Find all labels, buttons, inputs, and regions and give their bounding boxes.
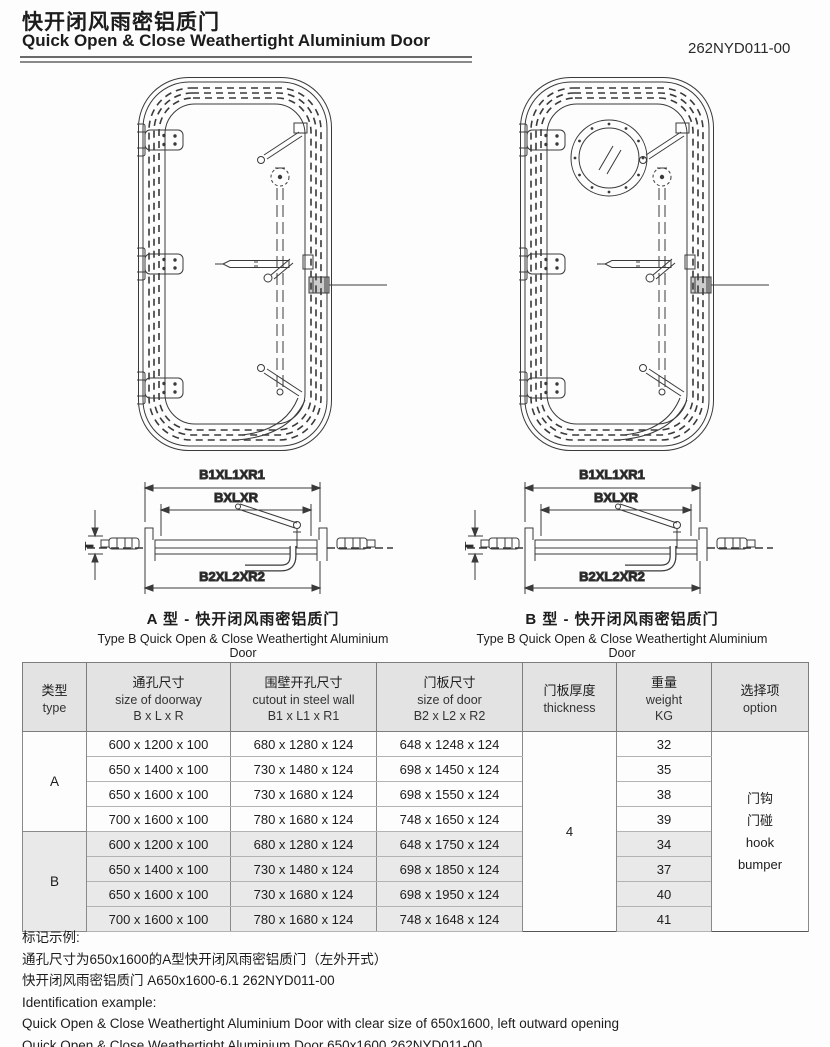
weight-value: 38 [617,782,712,807]
door-size: 748 x 1648 x 124 [377,907,523,932]
caption-type-b-en: Type B Quick Open & Close Weathertight A… [472,632,772,660]
weight-value: 35 [617,757,712,782]
page-title-en: Quick Open & Close Weathertight Aluminiu… [22,31,430,51]
weight-value: 41 [617,907,712,932]
cutout-size: 730 x 1680 x 124 [231,882,377,907]
option-item: 门碰 [714,810,806,832]
caption-type-a-zh: A 型 - 快开闭风雨密铝质门 [93,608,393,629]
cutout-size: 780 x 1680 x 124 [231,907,377,932]
footer-line: Quick Open & Close Weathertight Aluminiu… [22,1038,812,1047]
table-row: 700 x 1600 x 100 780 x 1680 x 124 748 x … [23,807,809,832]
option-item: bumper [714,854,806,876]
table-row: 650 x 1600 x 100 730 x 1680 x 124 698 x … [23,882,809,907]
thickness-cell: 4 [523,732,617,932]
cross-section-type-b [465,462,775,602]
caption-type-b: B 型 - 快开闭风雨密铝质门 Type B Quick Open & Clos… [472,608,772,660]
document-number: 262NYD011-00 [688,40,790,57]
col-header-doorway: 通孔尺寸 size of doorway B x L x R [87,663,231,732]
cutout-size: 680 x 1280 x 124 [231,832,377,857]
table-row: 650 x 1400 x 100 730 x 1480 x 124 698 x … [23,857,809,882]
title-divider [20,56,472,63]
caption-type-a-en: Type B Quick Open & Close Weathertight A… [93,632,393,660]
weight-value: 37 [617,857,712,882]
footer-line: 通孔尺寸为650x1600的A型快开闭风雨密铝质门（左外开式） [22,952,812,967]
col-header-type: 类型 type [23,663,87,732]
cross-section-type-a [85,462,395,602]
door-size: 698 x 1950 x 124 [377,882,523,907]
doorway-size: 650 x 1600 x 100 [87,882,231,907]
door-size: 698 x 1450 x 124 [377,757,523,782]
table-header-row: 类型 type 通孔尺寸 size of doorway B x L x R 围… [23,663,809,732]
weight-value: 40 [617,882,712,907]
footer-line: Identification example: [22,995,812,1010]
caption-type-a: A 型 - 快开闭风雨密铝质门 Type B Quick Open & Clos… [93,608,393,660]
door-size: 648 x 1750 x 124 [377,832,523,857]
option-cell: 门钩 门碰 hook bumper [712,732,809,932]
footer-line: 标记示例: [22,930,812,945]
weight-value: 32 [617,732,712,757]
identification-example: 标记示例: 通孔尺寸为650x1600的A型快开闭风雨密铝质门（左外开式） 快开… [22,930,812,1047]
col-header-option: 选择项 option [712,663,809,732]
doorway-size: 600 x 1200 x 100 [87,832,231,857]
doorway-size: 650 x 1400 x 100 [87,857,231,882]
doorway-size: 600 x 1200 x 100 [87,732,231,757]
table-row: B 600 x 1200 x 100 680 x 1280 x 124 648 … [23,832,809,857]
weight-value: 39 [617,807,712,832]
door-size: 698 x 1550 x 124 [377,782,523,807]
door-size: 698 x 1850 x 124 [377,857,523,882]
door-drawing-type-a [137,76,387,452]
caption-type-b-zh: B 型 - 快开闭风雨密铝质门 [472,608,772,629]
cutout-size: 730 x 1680 x 124 [231,782,377,807]
door-size: 648 x 1248 x 124 [377,732,523,757]
col-header-cutout: 围壁开孔尺寸 cutout in steel wall B1 x L1 x R1 [231,663,377,732]
type-cell-a: A [23,732,87,832]
col-header-door-size: 门板尺寸 size of door B2 x L2 x R2 [377,663,523,732]
document-page: B1XL1XR1 BXLXR [0,0,830,1047]
option-item: 门钩 [714,788,806,810]
door-size: 748 x 1650 x 124 [377,807,523,832]
door-drawing-type-b [519,76,769,452]
footer-line: 快开闭风雨密铝质门 A650x1600-6.1 262NYD011-00 [22,973,812,988]
table-row: 650 x 1600 x 100 730 x 1680 x 124 698 x … [23,782,809,807]
cutout-size: 730 x 1480 x 124 [231,857,377,882]
type-cell-b: B [23,832,87,932]
doorway-size: 700 x 1600 x 100 [87,807,231,832]
col-header-weight: 重量 weight KG [617,663,712,732]
cutout-size: 680 x 1280 x 124 [231,732,377,757]
table-row: 700 x 1600 x 100 780 x 1680 x 124 748 x … [23,907,809,932]
doorway-size: 650 x 1400 x 100 [87,757,231,782]
weight-value: 34 [617,832,712,857]
spec-table: 类型 type 通孔尺寸 size of doorway B x L x R 围… [22,662,809,932]
cutout-size: 780 x 1680 x 124 [231,807,377,832]
option-item: hook [714,832,806,854]
doorway-size: 700 x 1600 x 100 [87,907,231,932]
footer-line: Quick Open & Close Weathertight Aluminiu… [22,1016,812,1031]
col-header-thickness: 门板厚度 thickness [523,663,617,732]
doorway-size: 650 x 1600 x 100 [87,782,231,807]
cutout-size: 730 x 1480 x 124 [231,757,377,782]
table-row: A 600 x 1200 x 100 680 x 1280 x 124 648 … [23,732,809,757]
table-row: 650 x 1400 x 100 730 x 1480 x 124 698 x … [23,757,809,782]
porthole-icon [571,120,647,196]
